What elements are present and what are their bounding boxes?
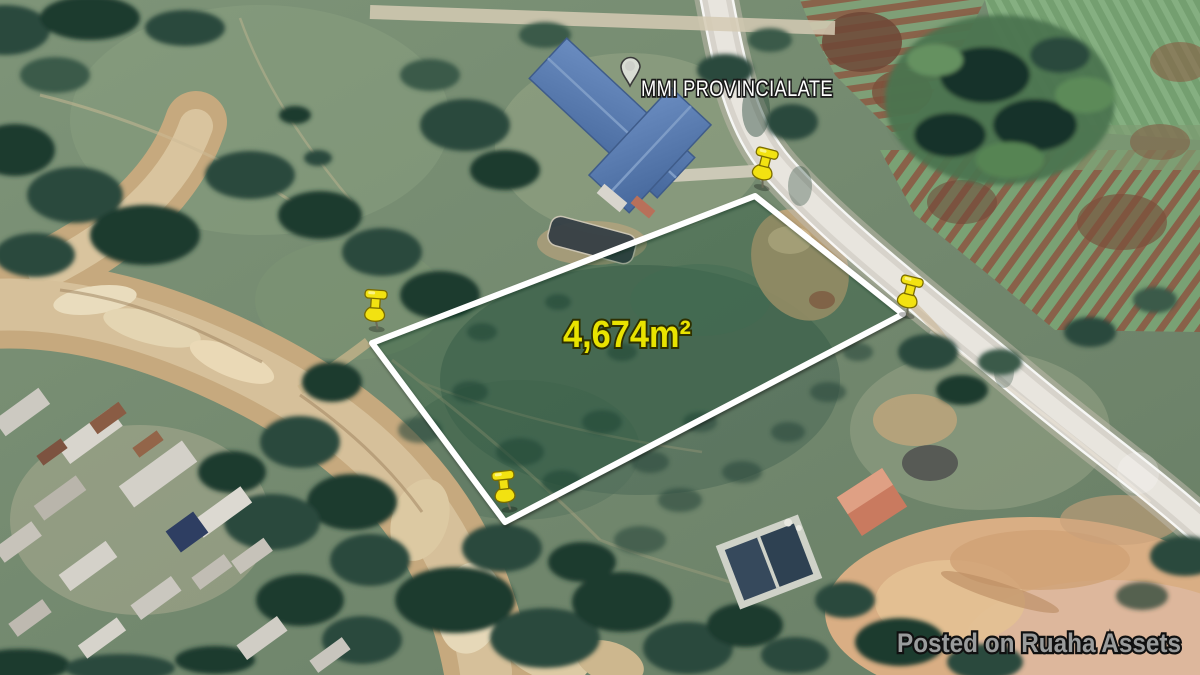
satellite-listing-image: MMI PROVINCIALATE 4,674m² Posted on Ruah… — [0, 0, 1200, 675]
watermark-label: Posted on Ruaha Assets — [897, 628, 1181, 658]
place-label: MMI PROVINCIALATE — [641, 76, 833, 101]
area-label: 4,674m² — [563, 314, 691, 356]
road-glare-circle — [1117, 452, 1159, 494]
bush-cluster — [885, 15, 1115, 185]
